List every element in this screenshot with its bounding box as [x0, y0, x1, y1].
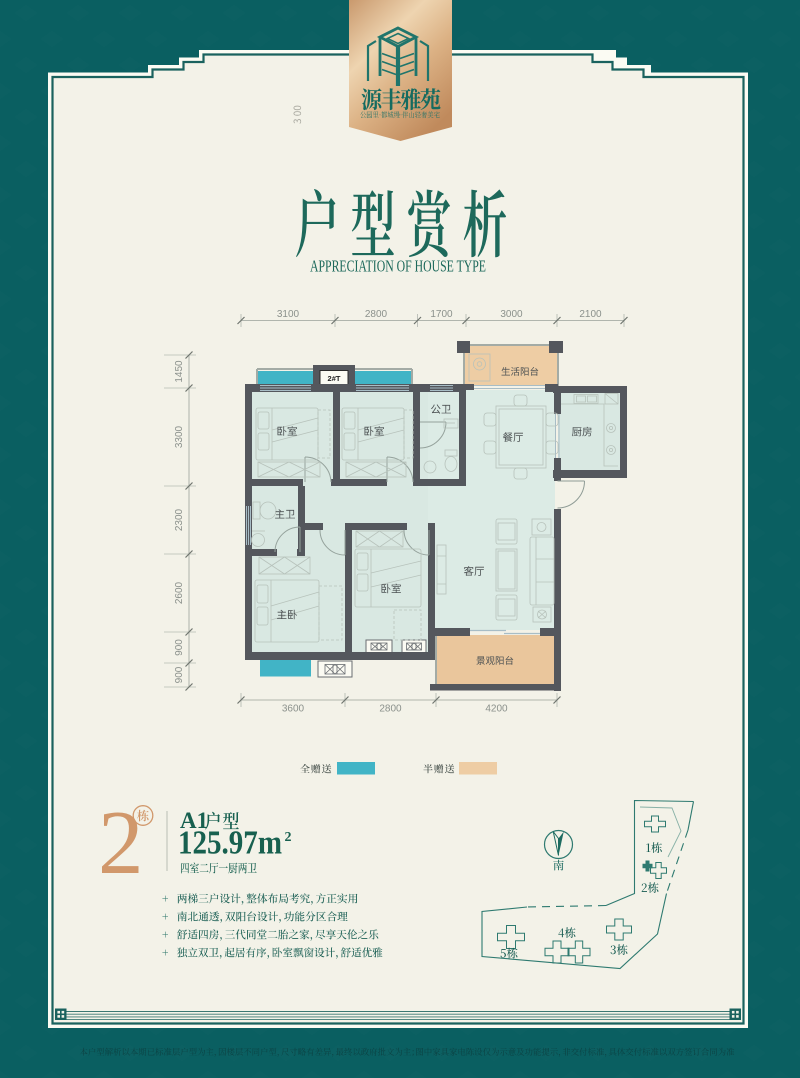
svg-text:2#T: 2#T — [328, 374, 341, 383]
svg-text:2: 2 — [285, 830, 292, 845]
svg-text:3300: 3300 — [174, 425, 185, 448]
svg-text:900: 900 — [174, 666, 185, 683]
svg-text:3100: 3100 — [277, 309, 300, 320]
svg-text:125.97m: 125.97m — [178, 825, 282, 862]
svg-text:900: 900 — [174, 639, 185, 656]
svg-text:1700: 1700 — [430, 309, 453, 320]
svg-text:2600: 2600 — [174, 581, 185, 604]
svg-text:2800: 2800 — [365, 309, 388, 320]
svg-text:3000: 3000 — [500, 309, 523, 320]
svg-text:3600: 3600 — [282, 704, 305, 715]
svg-text:2: 2 — [98, 792, 144, 893]
svg-text:2300: 2300 — [174, 508, 185, 531]
svg-text:APPRECIATION OF HOUSE TYPE: APPRECIATION OF HOUSE TYPE — [310, 257, 486, 276]
svg-text:1450: 1450 — [174, 360, 185, 383]
svg-text:4200: 4200 — [485, 704, 508, 715]
svg-text:2800: 2800 — [379, 704, 402, 715]
svg-text:2100: 2100 — [579, 309, 602, 320]
